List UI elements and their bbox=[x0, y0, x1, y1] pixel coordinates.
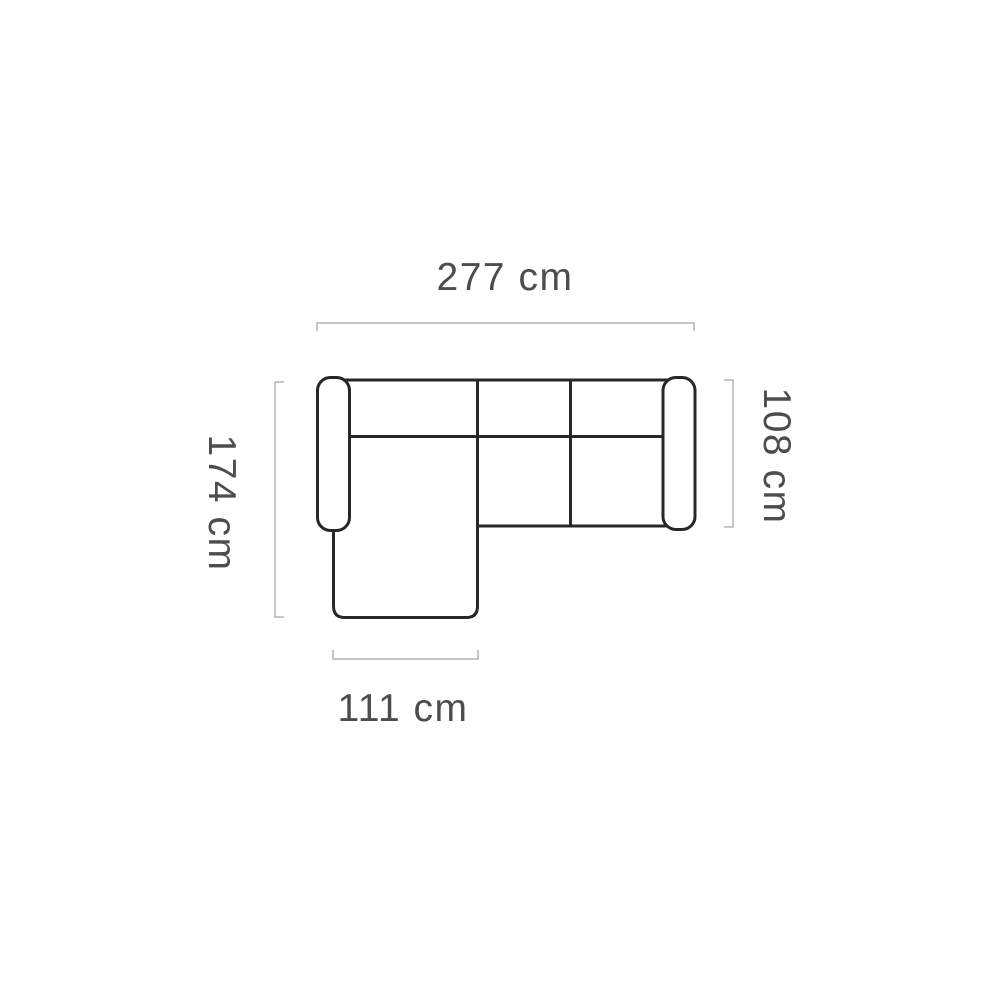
chaise-width-label: 111 cm bbox=[337, 687, 468, 731]
sofa-right-armrest bbox=[663, 378, 695, 530]
sofa-outline bbox=[318, 378, 696, 618]
total-width-label: 277 cm bbox=[437, 256, 574, 300]
sofa-dimension-diagram: 277 cm 174 cm 108 cm 111 cm bbox=[0, 0, 1000, 1000]
left-depth-dimension-bracket bbox=[275, 382, 284, 617]
sofa-left-armrest bbox=[318, 378, 350, 531]
body-depth-label: 108 cm bbox=[754, 388, 798, 525]
total-depth-label: 174 cm bbox=[199, 435, 243, 572]
diagram-drawing bbox=[0, 0, 1000, 1000]
top-width-dimension-bracket bbox=[317, 323, 694, 331]
sofa-chaise-outline bbox=[334, 380, 478, 618]
right-depth-dimension-bracket bbox=[724, 380, 733, 527]
bottom-chaise-dimension-bracket bbox=[333, 650, 478, 659]
